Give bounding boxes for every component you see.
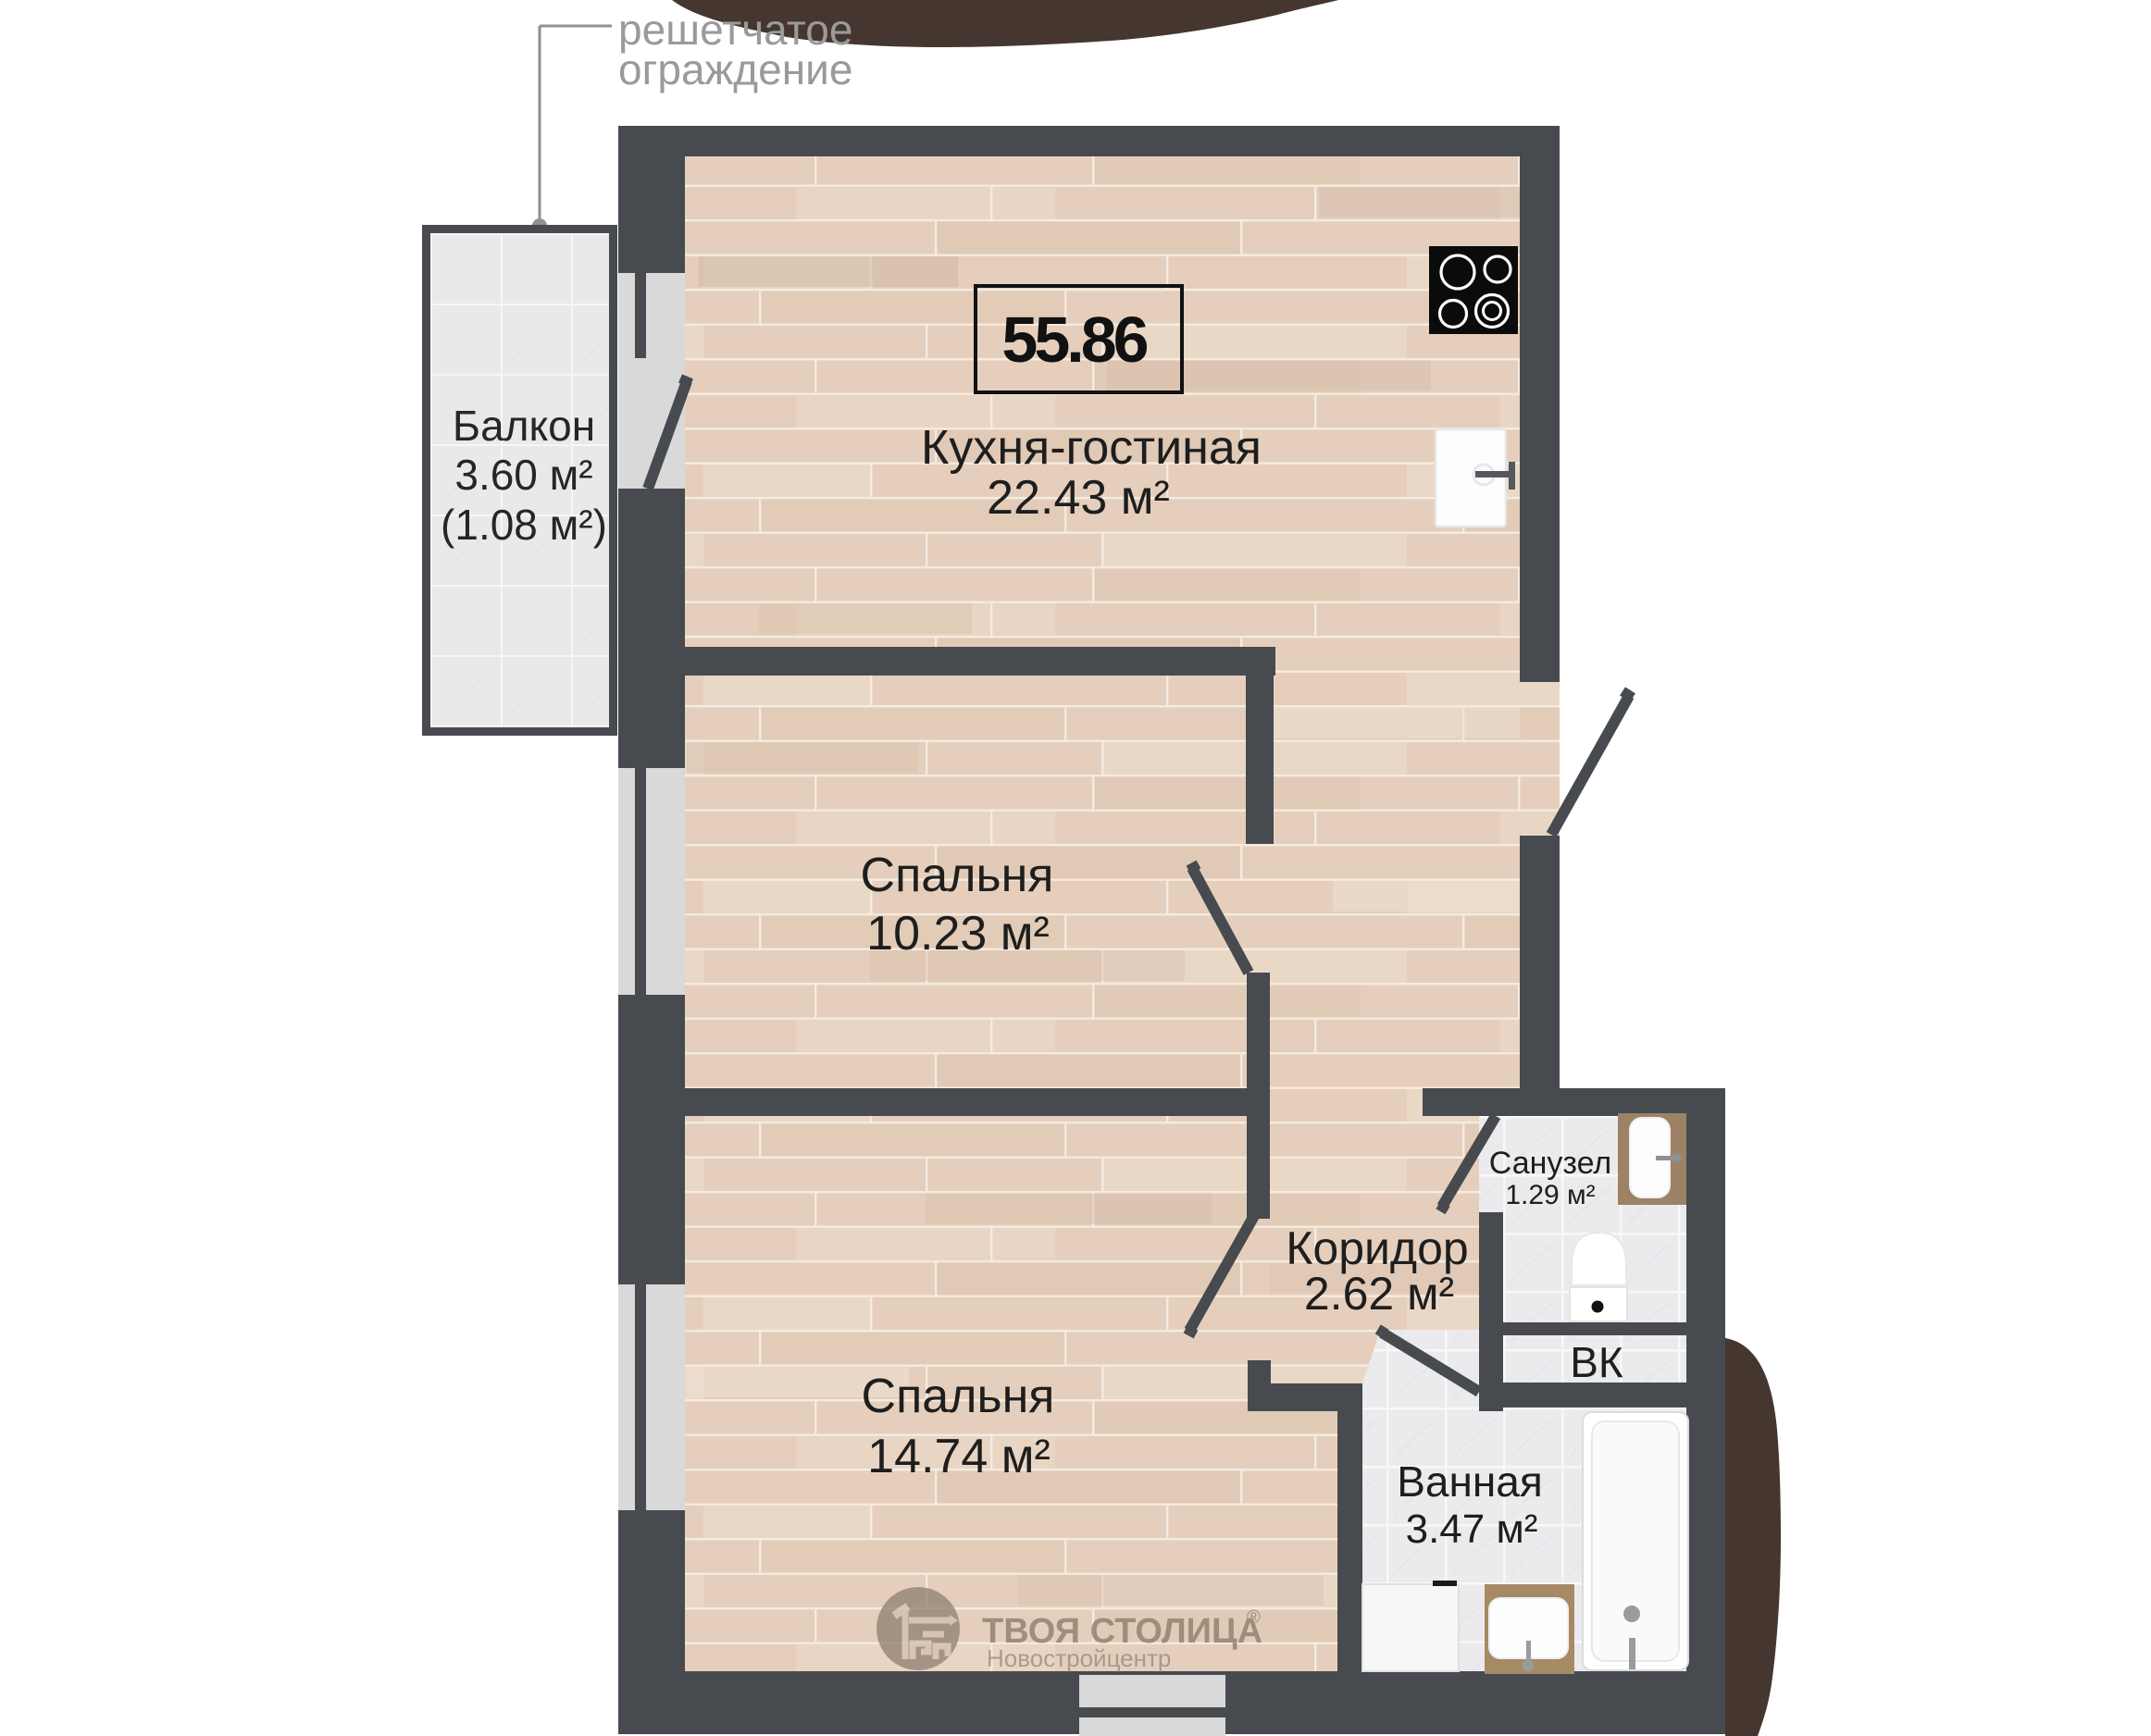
svg-text:Коридор: Коридор (1286, 1222, 1468, 1274)
svg-text:14.74 м²: 14.74 м² (867, 1430, 1051, 1483)
svg-text:ограждение: ограждение (618, 45, 852, 93)
svg-text:®: ® (1247, 1607, 1261, 1628)
svg-text:Спальня: Спальня (862, 1370, 1055, 1423)
svg-text:Балкон: Балкон (453, 402, 595, 450)
svg-text:Спальня: Спальня (861, 849, 1054, 902)
svg-text:55.86: 55.86 (1001, 304, 1147, 376)
svg-text:22.43 м²: 22.43 м² (987, 471, 1170, 525)
svg-text:1.29 м²: 1.29 м² (1505, 1180, 1595, 1210)
svg-text:Санузел: Санузел (1489, 1146, 1611, 1181)
svg-text:3.60 м²: 3.60 м² (454, 451, 592, 499)
svg-text:(1.08 м²): (1.08 м²) (441, 501, 607, 549)
svg-text:3.47 м²: 3.47 м² (1406, 1507, 1538, 1552)
svg-text:ВК: ВК (1570, 1338, 1623, 1386)
svg-text:Кухня-гостиная: Кухня-гостиная (921, 421, 1262, 475)
svg-text:Ванная: Ванная (1397, 1457, 1543, 1506)
svg-text:Новостройцентр: Новостройцентр (987, 1644, 1171, 1672)
svg-text:2.62 м²: 2.62 м² (1304, 1268, 1454, 1320)
svg-text:10.23 м²: 10.23 м² (866, 907, 1050, 961)
